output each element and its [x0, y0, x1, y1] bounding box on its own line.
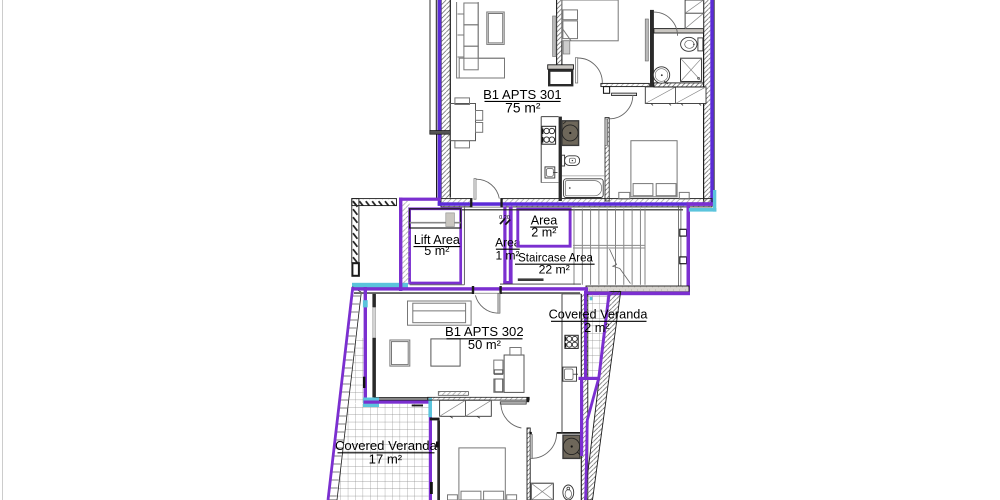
- svg-text:22 m²: 22 m²: [539, 263, 570, 277]
- svg-text:50 m²: 50 m²: [468, 337, 502, 352]
- svg-text:Covered Veranda: Covered Veranda: [549, 308, 649, 322]
- svg-text:75 m²: 75 m²: [505, 101, 541, 116]
- svg-text:2 m²: 2 m²: [531, 225, 556, 239]
- svg-text:2 m²: 2 m²: [584, 321, 609, 335]
- svg-text:B1 APTS 301: B1 APTS 301: [483, 87, 562, 102]
- svg-text:17 m²: 17 m²: [369, 452, 403, 467]
- svg-text:1 m²: 1 m²: [496, 248, 520, 262]
- svg-text:5 m²: 5 m²: [424, 244, 449, 258]
